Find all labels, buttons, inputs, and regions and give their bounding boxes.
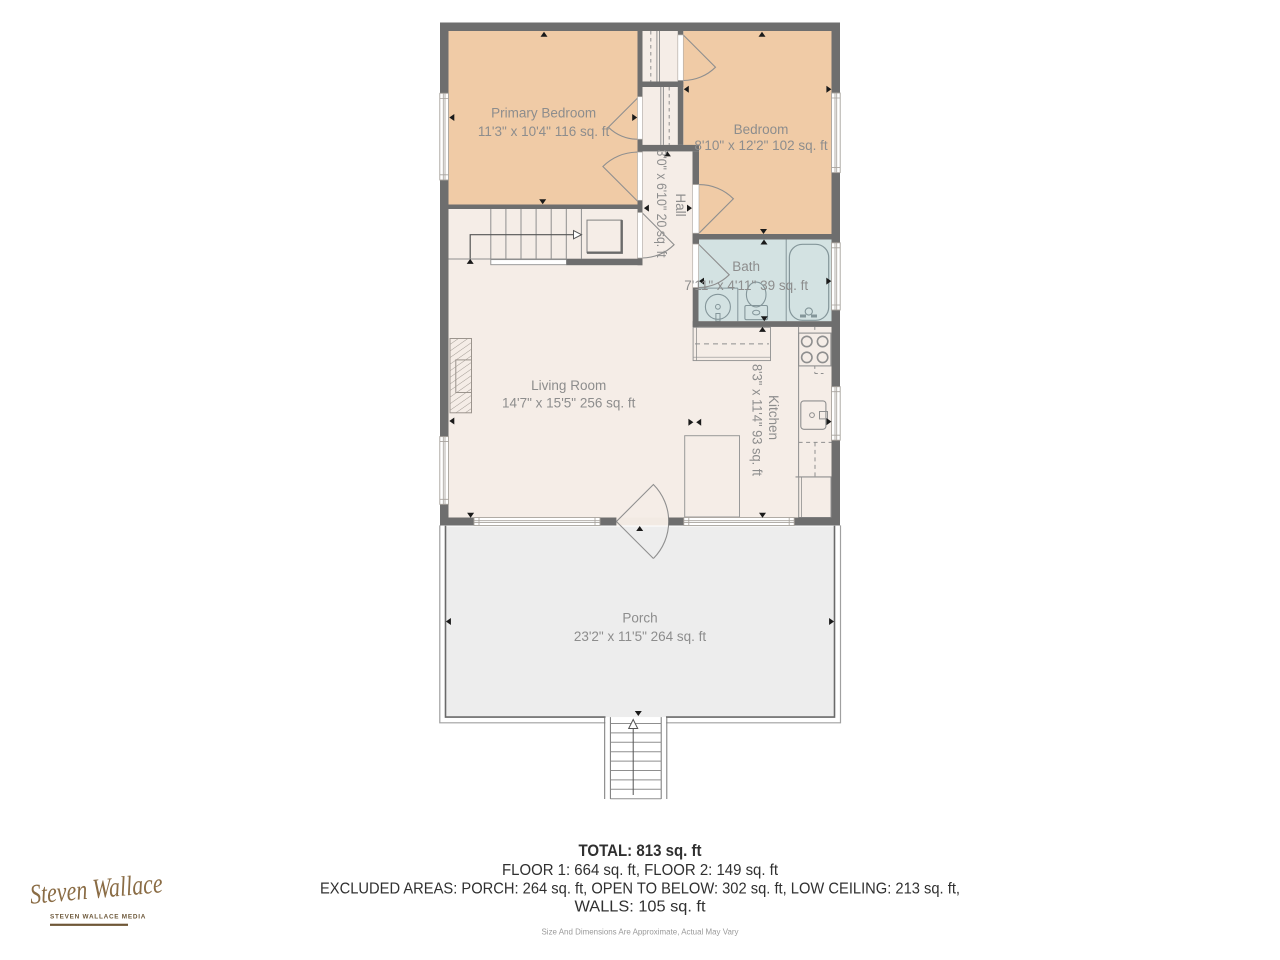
svg-text:11'3" x 10'4" 116 sq. ft: 11'3" x 10'4" 116 sq. ft — [478, 124, 610, 139]
svg-text:14'7" x 15'5" 256 sq. ft: 14'7" x 15'5" 256 sq. ft — [502, 395, 636, 410]
svg-text:Porch: Porch — [622, 611, 657, 626]
svg-text:TOTAL: 813 sq. ft: TOTAL: 813 sq. ft — [579, 841, 702, 860]
svg-text:Primary Bedroom: Primary Bedroom — [491, 106, 596, 121]
svg-text:STEVEN WALLACE MEDIA: STEVEN WALLACE MEDIA — [50, 914, 147, 921]
svg-text:Bath: Bath — [732, 259, 760, 274]
svg-text:Kitchen: Kitchen — [766, 395, 781, 440]
svg-text:3'0" x 6'10" 20 sq. ft: 3'0" x 6'10" 20 sq. ft — [654, 150, 669, 258]
svg-text:Bedroom: Bedroom — [734, 122, 789, 137]
svg-text:Size And Dimensions Are Approx: Size And Dimensions Are Approximate, Act… — [542, 927, 740, 937]
svg-text:EXCLUDED AREAS: PORCH: 264 sq.: EXCLUDED AREAS: PORCH: 264 sq. ft, OPEN … — [320, 881, 960, 898]
svg-text:23'2" x 11'5" 264 sq. ft: 23'2" x 11'5" 264 sq. ft — [574, 629, 707, 644]
svg-text:Living Room: Living Room — [531, 378, 606, 393]
svg-text:8'10" x 12'2" 102 sq. ft: 8'10" x 12'2" 102 sq. ft — [694, 138, 828, 153]
svg-text:FLOOR 1: 664 sq. ft, FLOOR 2:: FLOOR 1: 664 sq. ft, FLOOR 2: 149 sq. ft — [502, 862, 779, 879]
svg-text:7'11" x 4'11" 39 sq. ft: 7'11" x 4'11" 39 sq. ft — [684, 278, 808, 293]
svg-text:WALLS: 105 sq. ft: WALLS: 105 sq. ft — [575, 899, 707, 916]
svg-text:8'3" x 11'4" 93 sq. ft: 8'3" x 11'4" 93 sq. ft — [750, 364, 765, 476]
svg-text:Hall: Hall — [673, 193, 688, 216]
